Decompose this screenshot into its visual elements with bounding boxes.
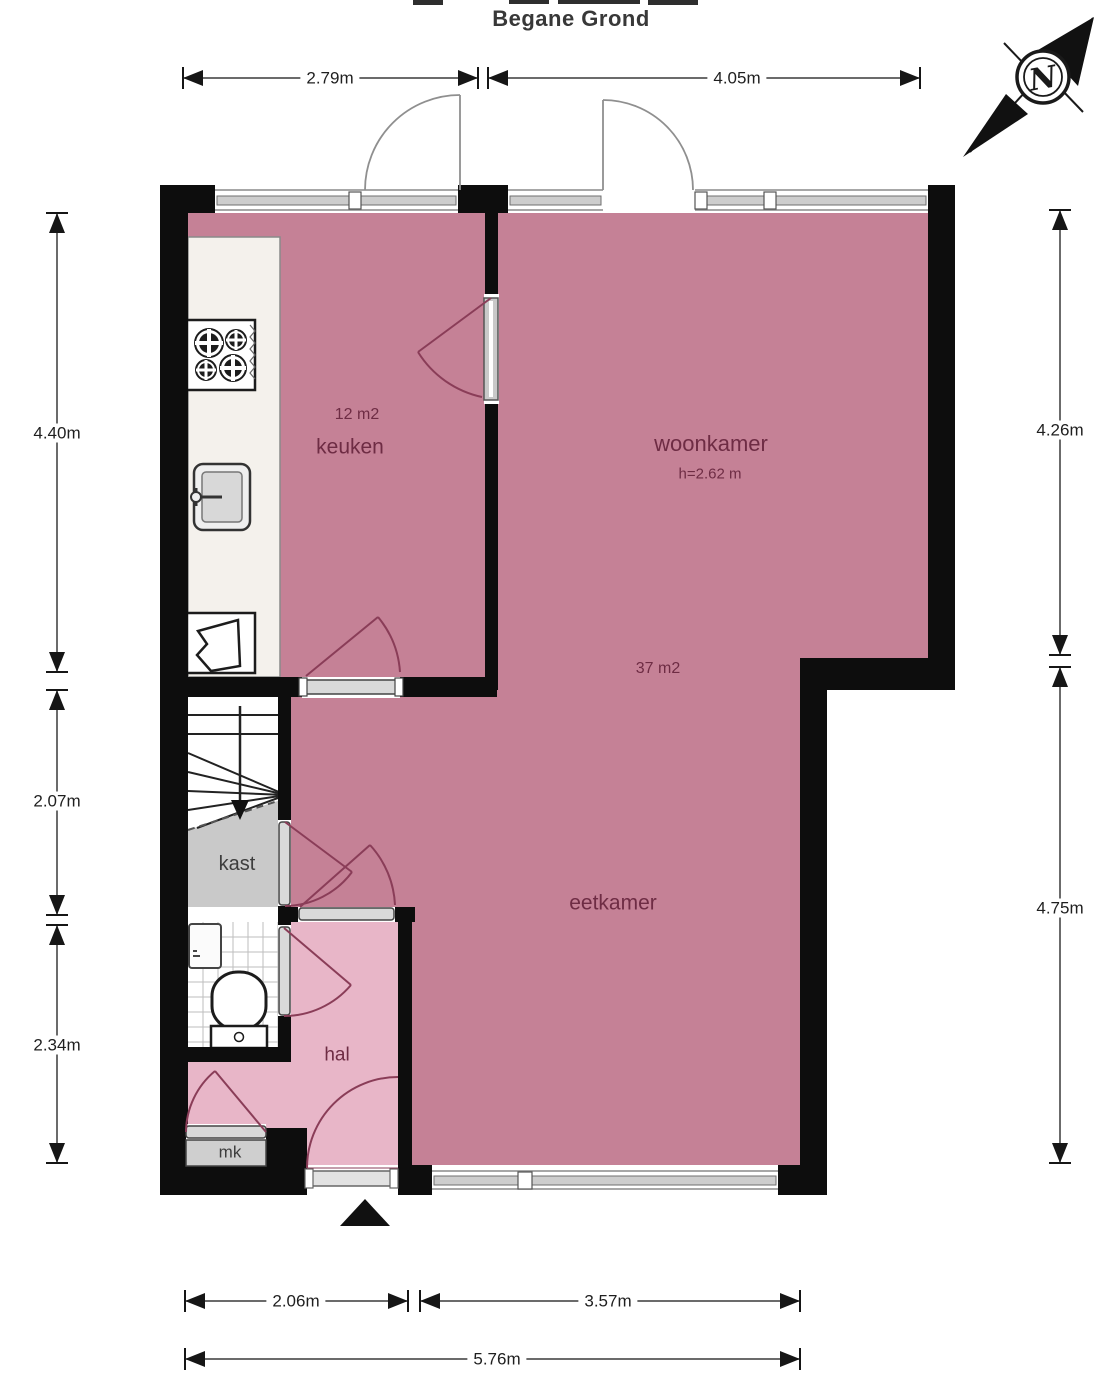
floor-plan: N Begane Grond 12 m2 keuken woonkamer h=… — [0, 0, 1116, 1384]
dim-bottom-3: 5.76m — [467, 1350, 526, 1369]
dim-right-1: 4.26m — [1030, 421, 1089, 440]
livingroom-window-left — [508, 188, 603, 212]
page-title: Begane Grond — [492, 8, 650, 30]
livingroom-height-label: h=2.62 m — [679, 467, 742, 482]
exterior-door-swings — [365, 95, 693, 190]
dim-top-1: 2.79m — [300, 69, 359, 88]
cropped-text-artifact — [413, 0, 698, 5]
dim-left-3: 2.34m — [27, 1036, 86, 1055]
floor-plan-drawing: N — [0, 0, 1116, 1384]
kitchen-window — [215, 188, 458, 212]
dim-left-2: 2.07m — [27, 792, 86, 811]
dim-top-2: 4.05m — [707, 69, 766, 88]
closet-label: kast — [219, 854, 256, 874]
diningroom-window — [432, 1168, 778, 1192]
entrance-arrow-icon — [340, 1199, 390, 1226]
wc-hand-basin-icon — [189, 924, 221, 968]
hall-label: hal — [324, 1046, 349, 1065]
boiler-icon — [187, 613, 255, 673]
dim-left-1: 4.40m — [27, 424, 86, 443]
dim-right-2: 4.75m — [1030, 899, 1089, 918]
sink-icon — [191, 464, 250, 530]
toilet-icon — [211, 972, 267, 1048]
livingroom-label: woonkamer — [654, 433, 768, 455]
diningroom-label: eetkamer — [569, 893, 657, 914]
meter-closet-label: mk — [219, 1144, 242, 1161]
kitchen-counter — [188, 237, 280, 677]
kitchen-balcony-door — [365, 95, 460, 190]
dim-bottom-1: 2.06m — [266, 1292, 325, 1311]
kitchen-area-label: 12 m2 — [335, 407, 379, 423]
livingroom-area-label: 37 m2 — [636, 661, 680, 677]
stove-icon — [187, 320, 255, 390]
compass-north-icon: N — [963, 17, 1094, 157]
livingroom-balcony-door — [603, 100, 693, 190]
kitchen-label: keuken — [316, 437, 384, 458]
dim-bottom-2: 3.57m — [578, 1292, 637, 1311]
livingroom-window-right — [695, 188, 928, 212]
